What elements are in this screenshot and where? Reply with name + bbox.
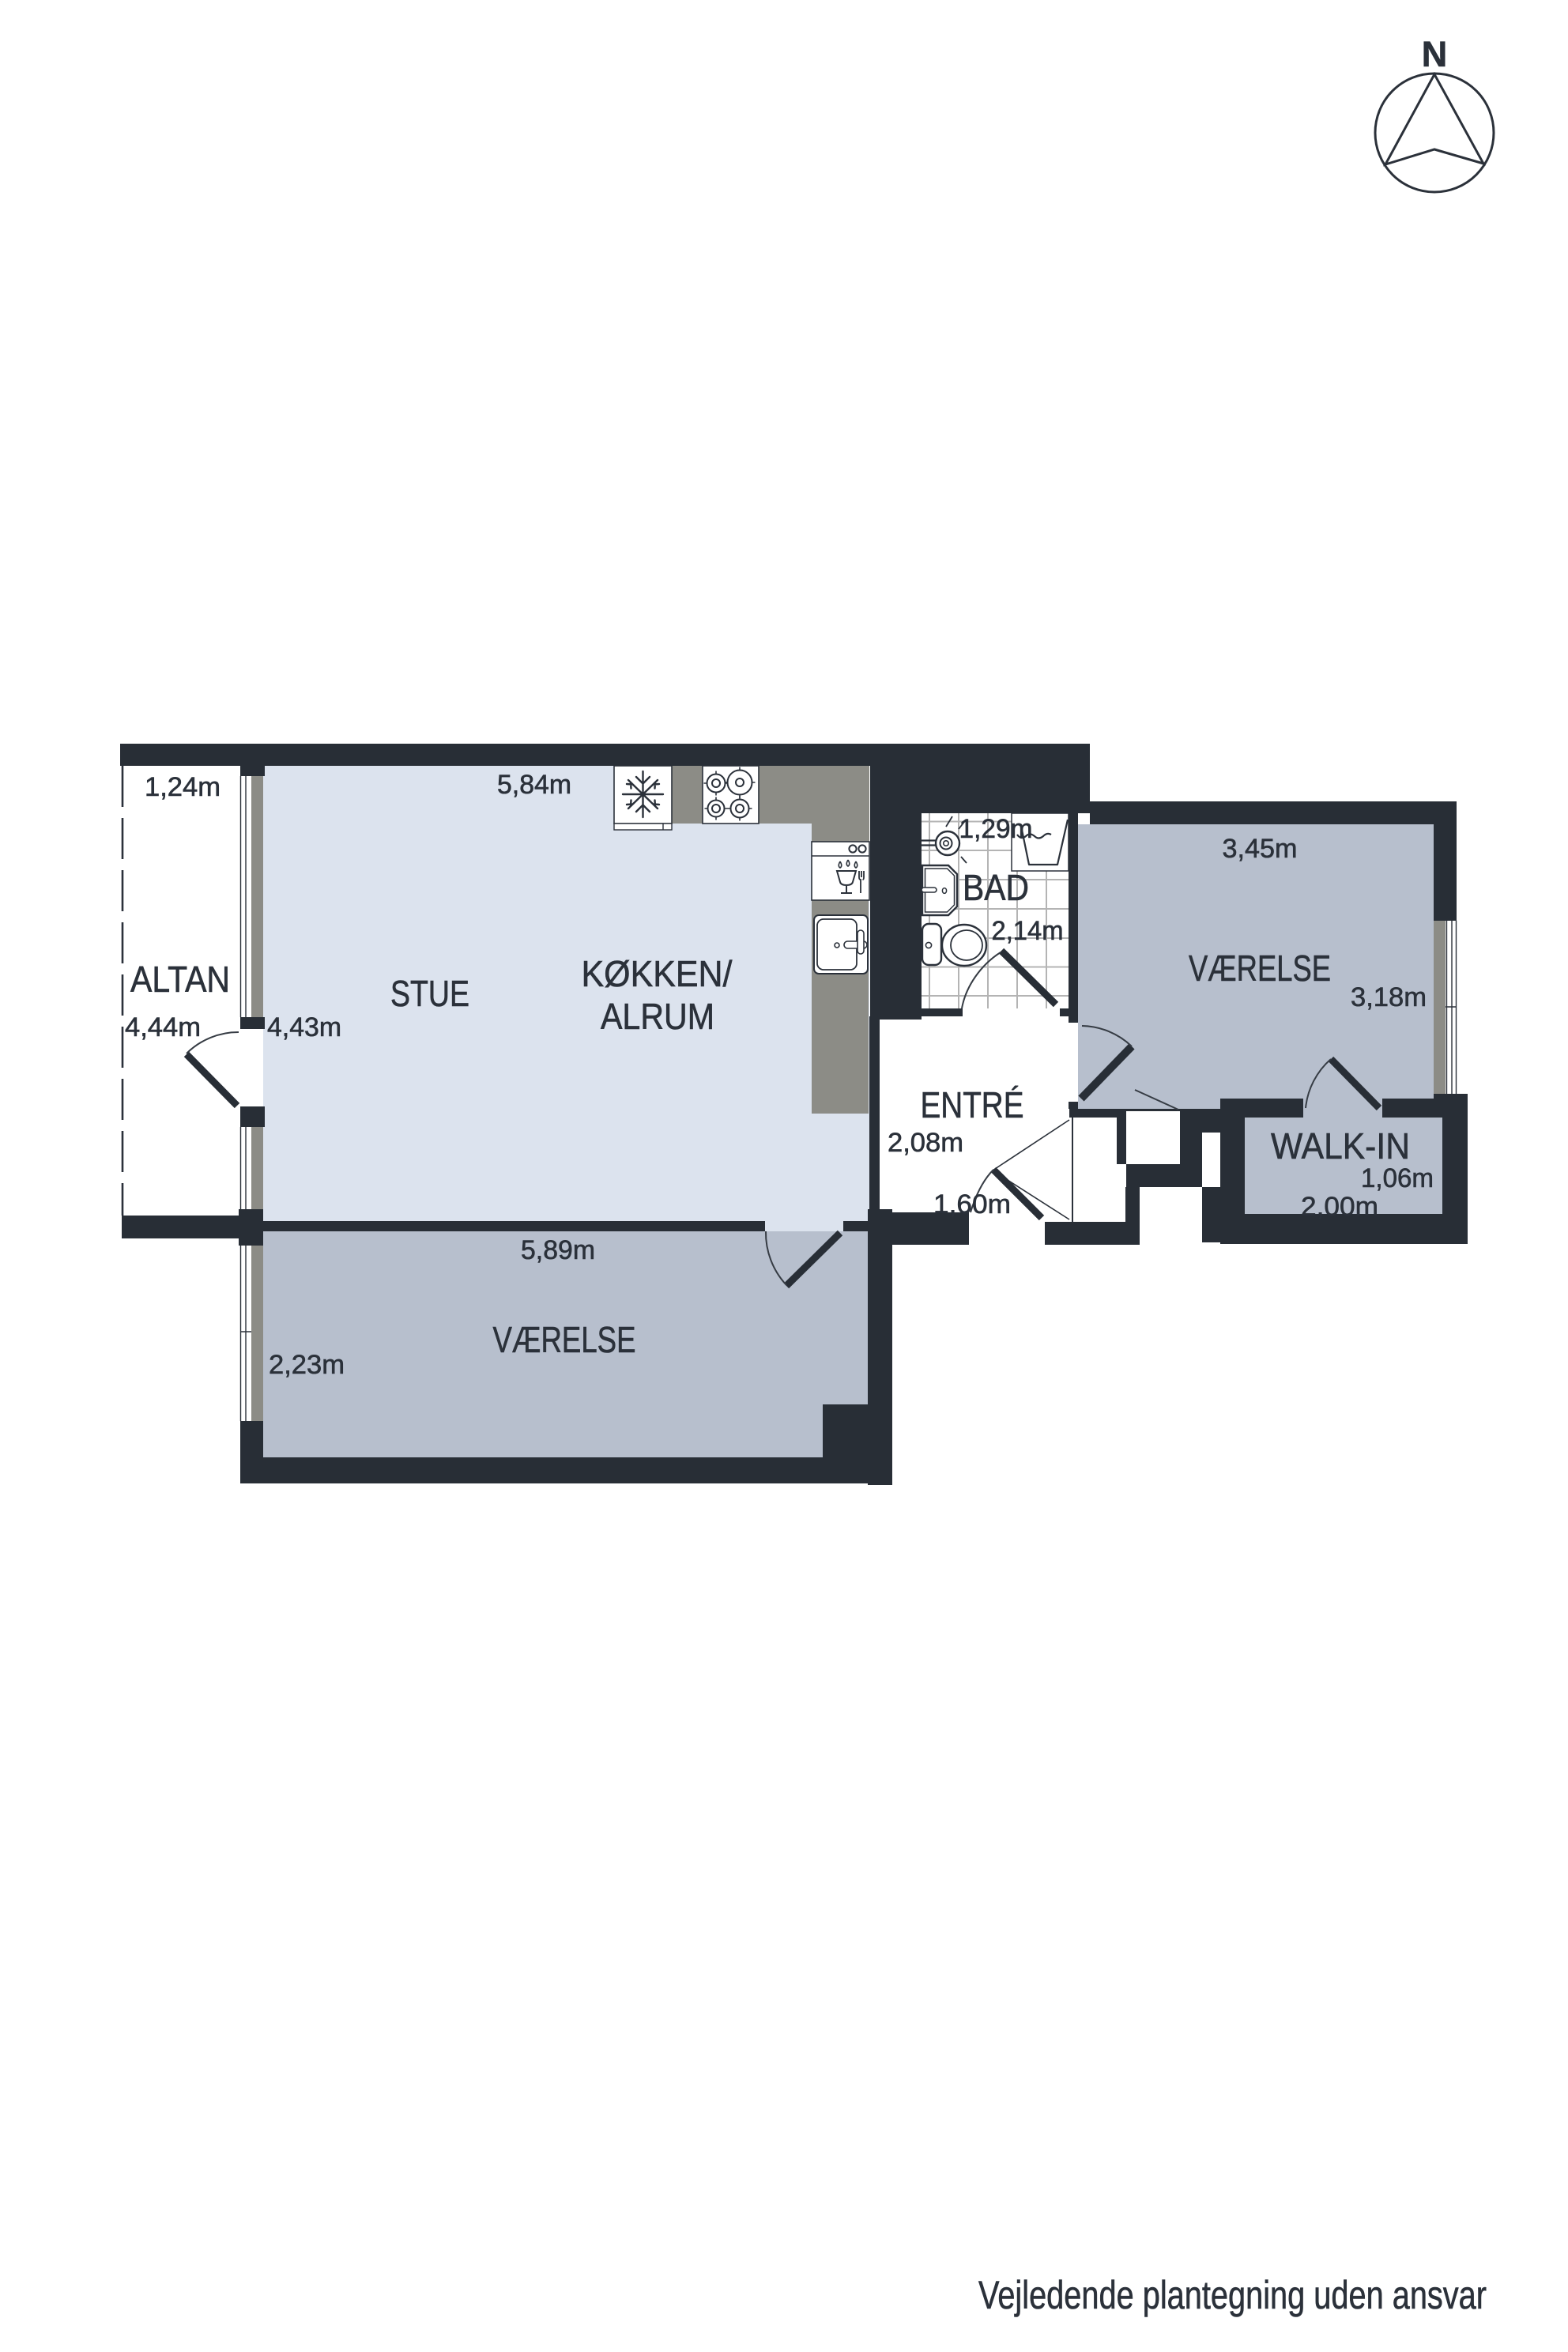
svg-text:2,23m: 2,23m — [269, 1350, 345, 1380]
svg-text:BAD: BAD — [963, 867, 1029, 908]
svg-text:5,89m: 5,89m — [521, 1235, 595, 1265]
svg-text:STUE: STUE — [390, 973, 469, 1014]
svg-text:3,45m: 3,45m — [1223, 834, 1298, 864]
svg-text:KØKKEN/: KØKKEN/ — [582, 953, 733, 994]
svg-text:4,44m: 4,44m — [125, 1012, 201, 1042]
svg-text:1,60m: 1,60m — [933, 1189, 1011, 1219]
svg-text:N: N — [1422, 34, 1448, 74]
svg-text:2,00m: 2,00m — [1301, 1192, 1378, 1222]
svg-text:VÆRELSE: VÆRELSE — [493, 1319, 636, 1360]
svg-text:3,18m: 3,18m — [1351, 982, 1427, 1012]
svg-text:ENTRÉ: ENTRÉ — [921, 1084, 1024, 1125]
svg-text:Vejledende plantegning uden an: Vejledende plantegning uden ansvar — [978, 2273, 1487, 2317]
svg-text:1,29m: 1,29m — [959, 814, 1033, 844]
svg-text:ALRUM: ALRUM — [601, 996, 714, 1037]
svg-text:WALK-IN: WALK-IN — [1271, 1125, 1410, 1167]
svg-text:ALTAN: ALTAN — [130, 959, 230, 1000]
svg-text:VÆRELSE: VÆRELSE — [1189, 948, 1331, 989]
svg-text:4,43m: 4,43m — [267, 1012, 341, 1042]
svg-text:2,14m: 2,14m — [992, 916, 1064, 946]
svg-text:1,24m: 1,24m — [145, 772, 220, 802]
svg-text:5,84m: 5,84m — [497, 770, 571, 800]
svg-text:1,06m: 1,06m — [1361, 1163, 1434, 1193]
svg-text:2,08m: 2,08m — [888, 1128, 963, 1158]
